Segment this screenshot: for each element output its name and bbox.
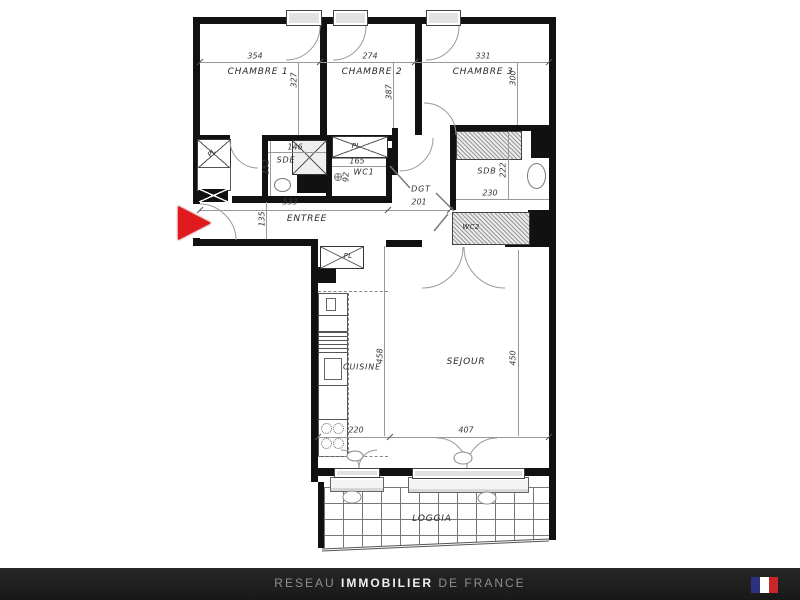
brand-prefix: RESEAU — [274, 576, 335, 590]
room-label-wc1: WC1 — [354, 168, 375, 177]
flag-stripe-blue — [751, 577, 760, 593]
room-label-wc2: WC2 — [462, 223, 479, 231]
dim-chambre1-width: 354 — [247, 52, 262, 61]
dim-ticks — [197, 59, 552, 440]
plan-annotations — [0, 0, 800, 568]
flag-stripe-white — [760, 577, 769, 593]
dim-cuisine-width: 220 — [348, 426, 363, 435]
brand-suffix: DE FRANCE — [438, 576, 525, 590]
dim-entree-depth: 135 — [258, 211, 267, 226]
dim-wc1-level: 92 — [342, 172, 351, 182]
room-label-chambre2: CHAMBRE 2 — [342, 67, 403, 77]
room-label-dgt: DGT — [411, 185, 431, 194]
closet-label-hall: PL — [352, 142, 361, 150]
dim-chambre3-depth: 300 — [509, 70, 518, 85]
dim-chambre3-width: 331 — [475, 52, 490, 61]
dim-sdb-width: 230 — [482, 189, 497, 198]
closet-label-cuisine: PL — [344, 252, 353, 260]
french-flag-icon — [751, 577, 778, 593]
room-label-loggia: LOGGIA — [412, 514, 451, 524]
room-label-cuisine: CUISINE — [343, 363, 381, 372]
footer-brand: RESEAU IMMOBILIER DE FRANCE — [0, 576, 800, 590]
dim-sde-depth: 152 — [262, 159, 271, 174]
dim-chambre2-depth: 387 — [385, 84, 394, 99]
room-label-sdb: SDB — [477, 167, 496, 176]
dim-sdb-depth: 222 — [499, 162, 508, 177]
dim-sejour-width: 407 — [458, 426, 473, 435]
room-label-entree: ENTREE — [287, 214, 327, 224]
room-label-chambre3: CHAMBRE 3 — [453, 67, 514, 77]
dim-dgt-width: 201 — [411, 198, 426, 207]
entrance-arrow — [178, 206, 211, 240]
dim-cuisine-depth: 458 — [376, 348, 385, 363]
footer-bar: RESEAU IMMOBILIER DE FRANCE — [0, 568, 800, 600]
room-label-chambre1: CHAMBRE 1 — [228, 67, 289, 77]
dim-sejour-depth: 450 — [509, 350, 518, 365]
dim-entree-width: 533 — [282, 198, 297, 207]
room-label-sejour: SEJOUR — [447, 357, 486, 367]
door-arcs — [200, 26, 505, 468]
flag-stripe-red — [769, 577, 778, 593]
dim-chambre1-depth: 327 — [290, 72, 299, 87]
dim-chambre2-width: 274 — [362, 52, 377, 61]
floor-plan: CHAMBRE 1 CHAMBRE 2 CHAMBRE 3 SDE WC1 DG… — [0, 0, 800, 568]
dim-sde-width: 146 — [287, 143, 302, 152]
dim-wc1-width: 165 — [349, 157, 364, 166]
brand-main: IMMOBILIER — [341, 576, 433, 590]
room-label-sde: SDE — [277, 156, 296, 165]
loggia-edge — [322, 539, 549, 551]
